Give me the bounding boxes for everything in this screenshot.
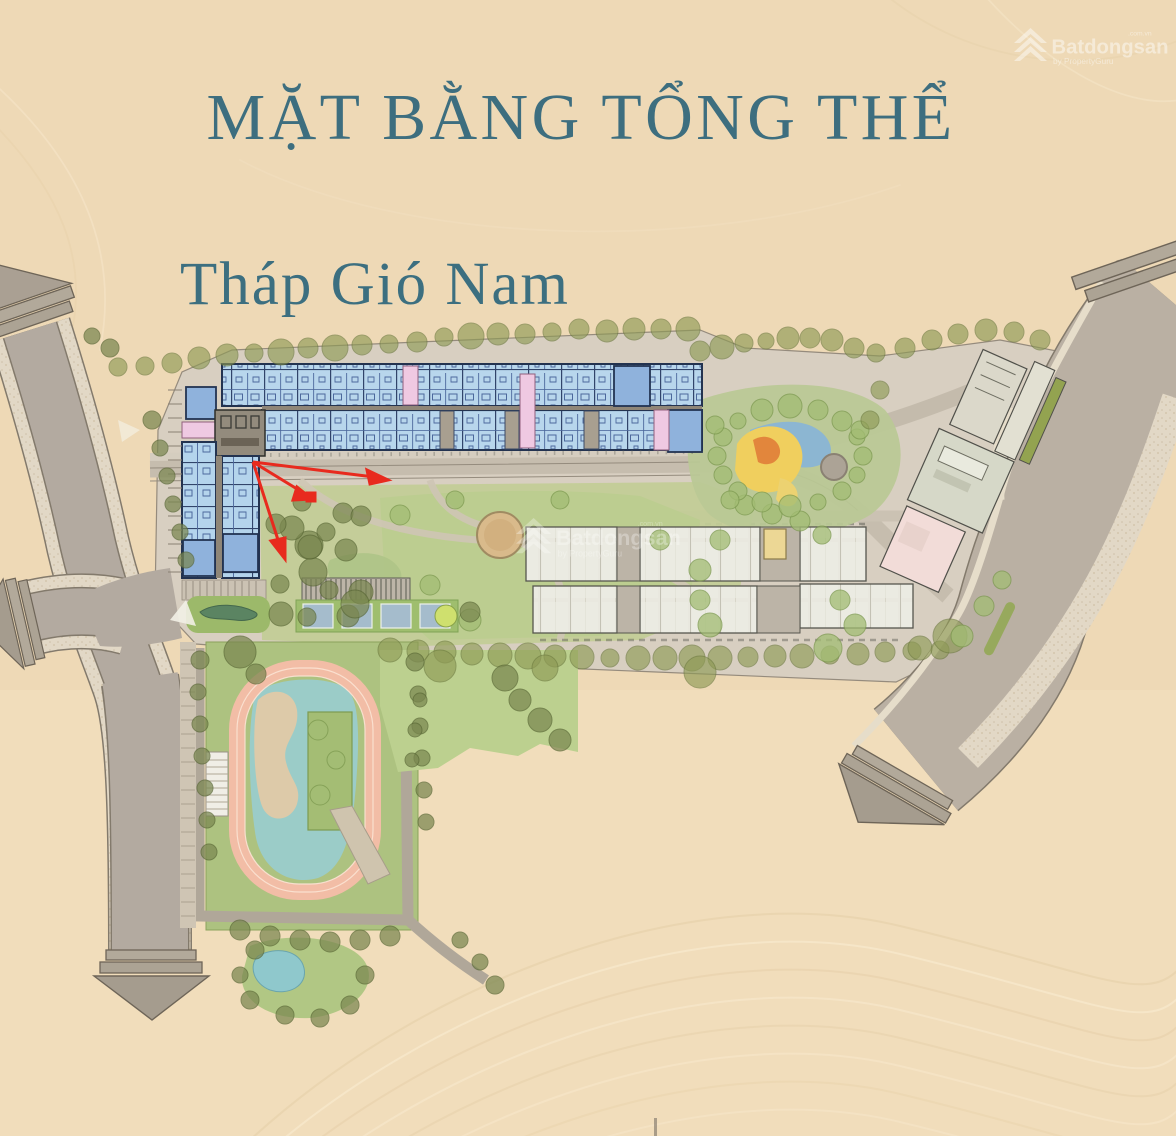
svg-text:by PropertyGuru: by PropertyGuru — [558, 548, 623, 558]
svg-text:Tháp Gió Nam: Tháp Gió Nam — [180, 251, 570, 318]
svg-text:MẶT BẰNG TỔNG THỂ: MẶT BẰNG TỔNG THỂ — [207, 80, 956, 154]
svg-text:Batdongsan: Batdongsan — [1052, 37, 1169, 59]
svg-text:Batdongsan: Batdongsan — [556, 525, 681, 550]
svg-text:by PropertyGuru: by PropertyGuru — [1053, 57, 1114, 66]
svg-text:.com.vn: .com.vn — [638, 519, 663, 528]
svg-text:.com.vn: .com.vn — [1128, 31, 1152, 38]
